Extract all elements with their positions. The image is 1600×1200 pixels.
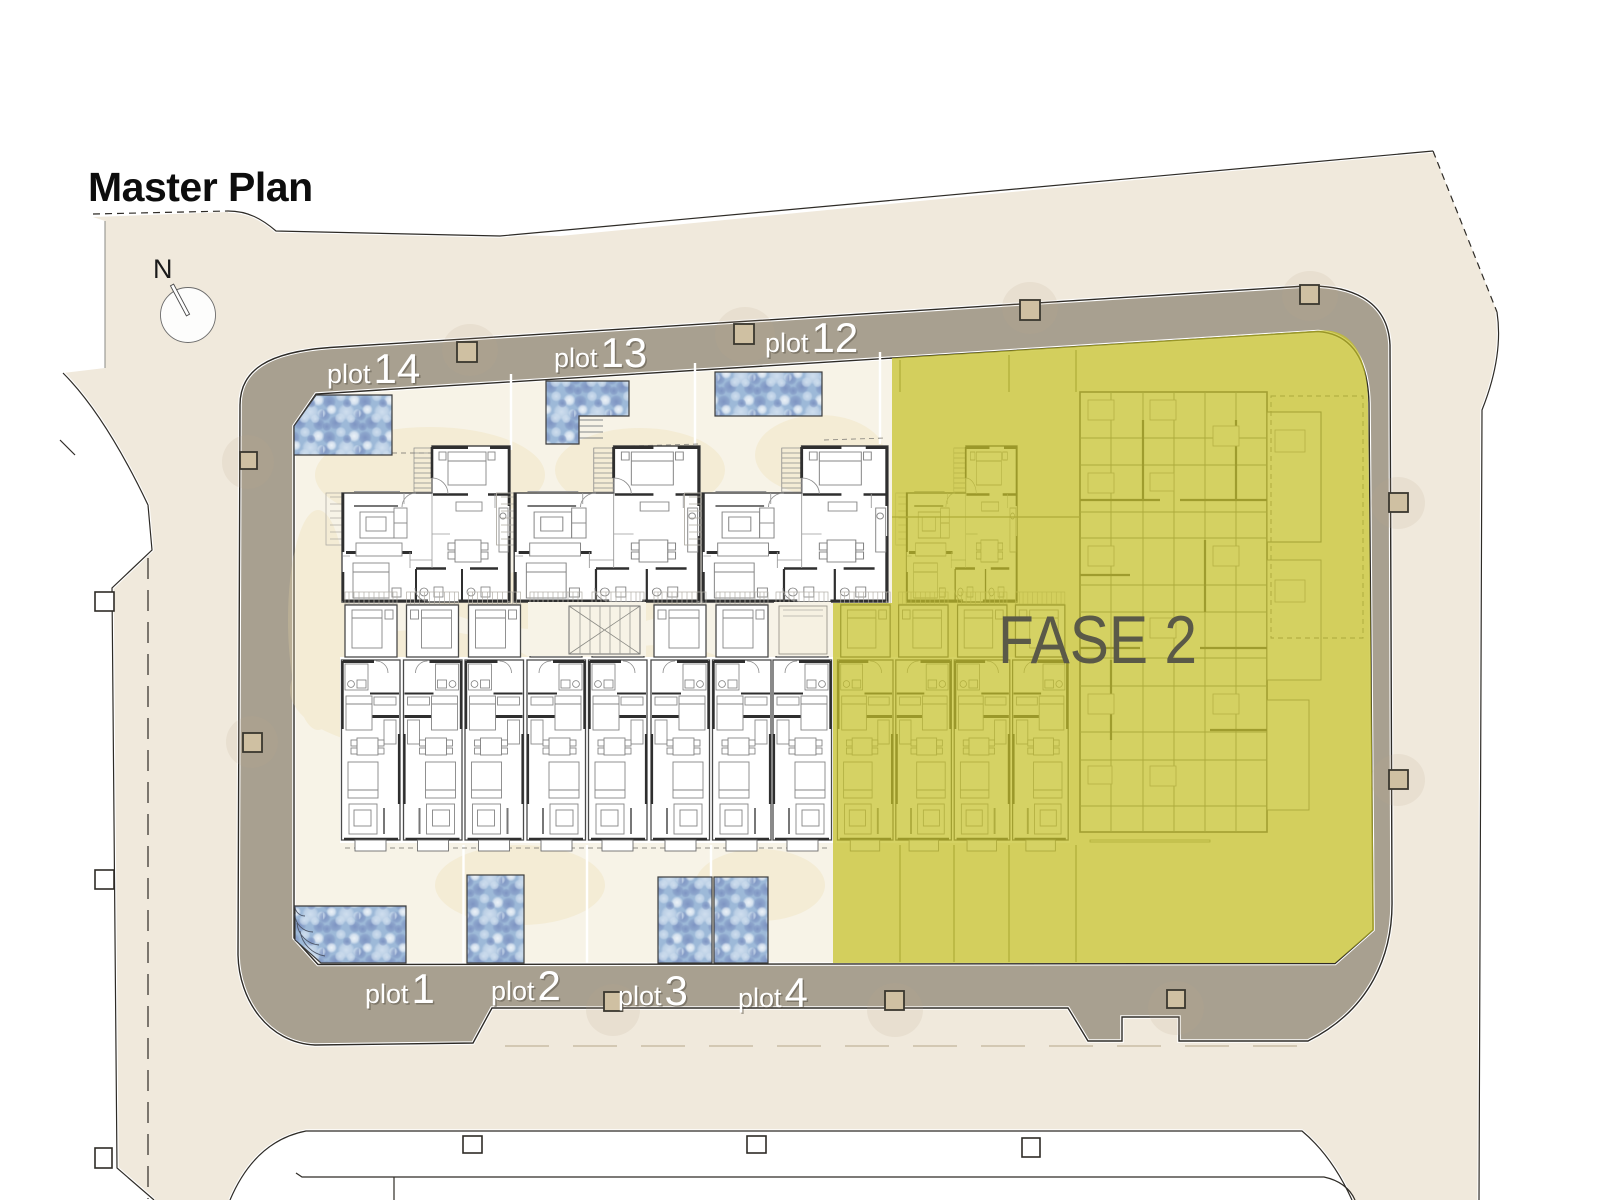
svg-text:N: N	[153, 254, 173, 284]
svg-text:Master Plan: Master Plan	[88, 164, 313, 210]
svg-text:FASE 2: FASE 2	[998, 602, 1197, 678]
